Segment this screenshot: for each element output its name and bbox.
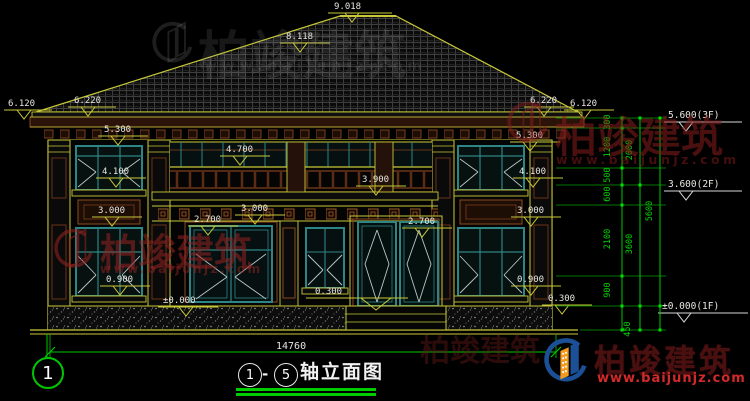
watermark-logo-top (150, 18, 196, 72)
level-2f: 3.600(2F) (668, 179, 719, 190)
dim-left-5300: 5.300 (104, 125, 131, 135)
watermark-logo-right (505, 96, 551, 154)
dim-left-4100: 4.100 (102, 167, 129, 177)
watermark-url-right: www.baijunjz.com (556, 152, 740, 167)
dim-center-3900: 3.900 (362, 175, 389, 185)
chain-3600: 3600 (625, 222, 635, 266)
title-underline-1 (236, 388, 376, 391)
dim-right-0300: 0.300 (548, 294, 575, 304)
elevation-sheet: 9.018 8.118 6.120 6.220 5.300 4.100 3.00… (0, 0, 750, 401)
watermark-brand-footer: 柏竣建筑 (420, 326, 540, 370)
dim-center-2700b: 2.700 (408, 217, 435, 227)
axis-bubble-1: 1 (32, 357, 64, 389)
watermark-url-top: www.baijunjz.com (204, 58, 427, 74)
dim-center-0300: 0.300 (315, 287, 342, 297)
dim-center-3000: 3.000 (241, 204, 268, 214)
window-1f-center (302, 228, 348, 294)
title-underline-2 (236, 393, 376, 396)
title-axis-end-circle: 5 (274, 363, 298, 387)
drawing-title: 轴立面图 (300, 357, 384, 384)
title-axis-separator: - (262, 365, 268, 383)
chain-600: 600 (603, 172, 613, 216)
chain-2100: 2100 (603, 217, 613, 261)
dim-ridge: 9.018 (334, 2, 361, 12)
watermark-url-midleft: www.baijunjz.com (100, 262, 263, 276)
watermark-brand-top: 柏竣建筑 (198, 14, 406, 89)
dim-left-3000: 3.000 (98, 206, 125, 216)
balcony-2f (152, 142, 438, 200)
dim-right-3000: 3.000 (517, 206, 544, 216)
watermark-logo-midleft (52, 222, 96, 280)
dim-center-4700: 4.700 (226, 145, 253, 155)
chain-900: 900 (603, 268, 613, 312)
chain-5600: 5600 (645, 189, 655, 233)
title-axis-start-circle: 1 (238, 363, 262, 387)
level-1f: ±0.000(1F) (662, 301, 719, 312)
total-width-dimension: 14760 (276, 341, 306, 352)
dim-left-6120: 6.120 (8, 99, 35, 109)
dim-left-6220: 6.220 (74, 96, 101, 106)
brand-logo-icon (542, 336, 588, 388)
dim-right-0900: 0.900 (517, 275, 544, 285)
dim-left-0000: ±0.000 (163, 296, 196, 306)
brand-url: www.baijunjz.com (597, 371, 746, 386)
dim-right-4100: 4.100 (519, 167, 546, 177)
pier-1f-center (280, 221, 298, 306)
window-1f-right (454, 228, 528, 302)
